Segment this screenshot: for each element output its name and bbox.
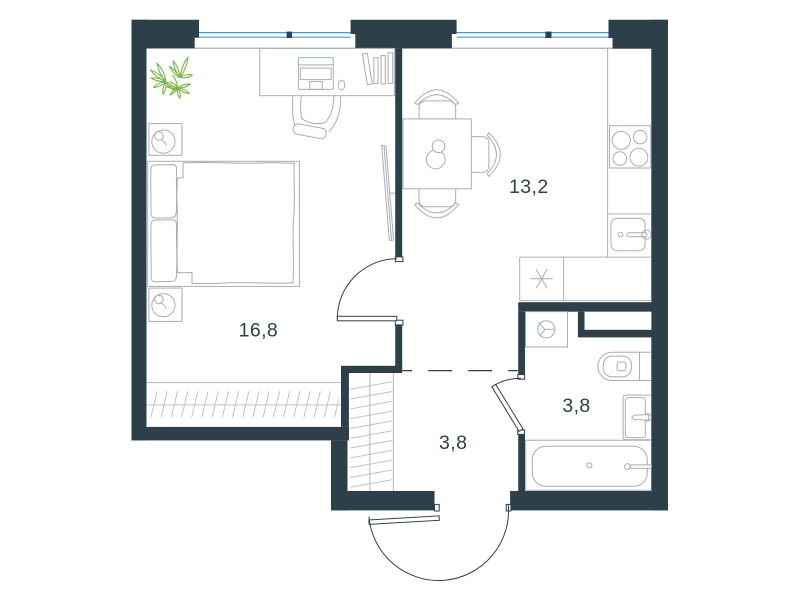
svg-text:16,8: 16,8: [239, 320, 279, 342]
svg-text:3,8: 3,8: [439, 432, 467, 454]
svg-text:13,2: 13,2: [509, 176, 549, 198]
svg-text:3,8: 3,8: [562, 395, 590, 417]
